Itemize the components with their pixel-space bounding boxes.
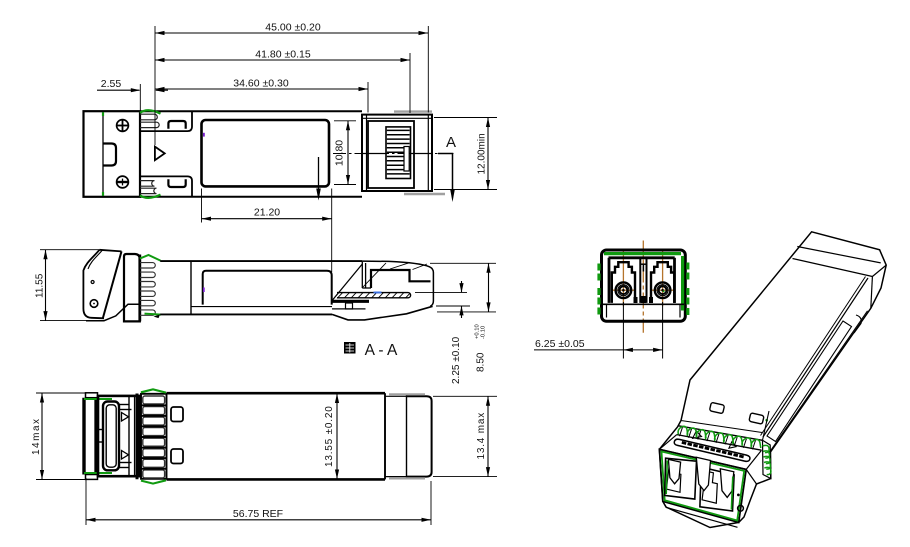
svg-text:12.00min: 12.00min <box>477 133 488 174</box>
svg-text:21.20: 21.20 <box>254 207 280 219</box>
svg-text:10.80: 10.80 <box>334 140 346 166</box>
svg-text:A: A <box>446 134 456 151</box>
svg-text:13.55 ±0.20: 13.55 ±0.20 <box>324 405 335 467</box>
svg-text:2.25 ±0.10: 2.25 ±0.10 <box>451 336 462 384</box>
svg-text:11.55: 11.55 <box>35 273 46 298</box>
svg-text:-0.10: -0.10 <box>481 326 487 339</box>
svg-text:A - A: A - A <box>365 342 398 359</box>
svg-text:6.25 ±0.05: 6.25 ±0.05 <box>535 338 585 350</box>
svg-text:14max: 14max <box>31 417 42 455</box>
svg-text:56.75 REF: 56.75 REF <box>233 508 283 520</box>
svg-text:2.55: 2.55 <box>101 78 122 90</box>
svg-text:13.4 max: 13.4 max <box>476 412 487 460</box>
svg-text:34.60 ±0.30: 34.60 ±0.30 <box>233 78 289 90</box>
svg-text:41.80 ±0.15: 41.80 ±0.15 <box>255 49 311 61</box>
svg-text:8.50: 8.50 <box>476 352 487 372</box>
svg-text:45.00 ±0.20: 45.00 ±0.20 <box>265 22 321 34</box>
